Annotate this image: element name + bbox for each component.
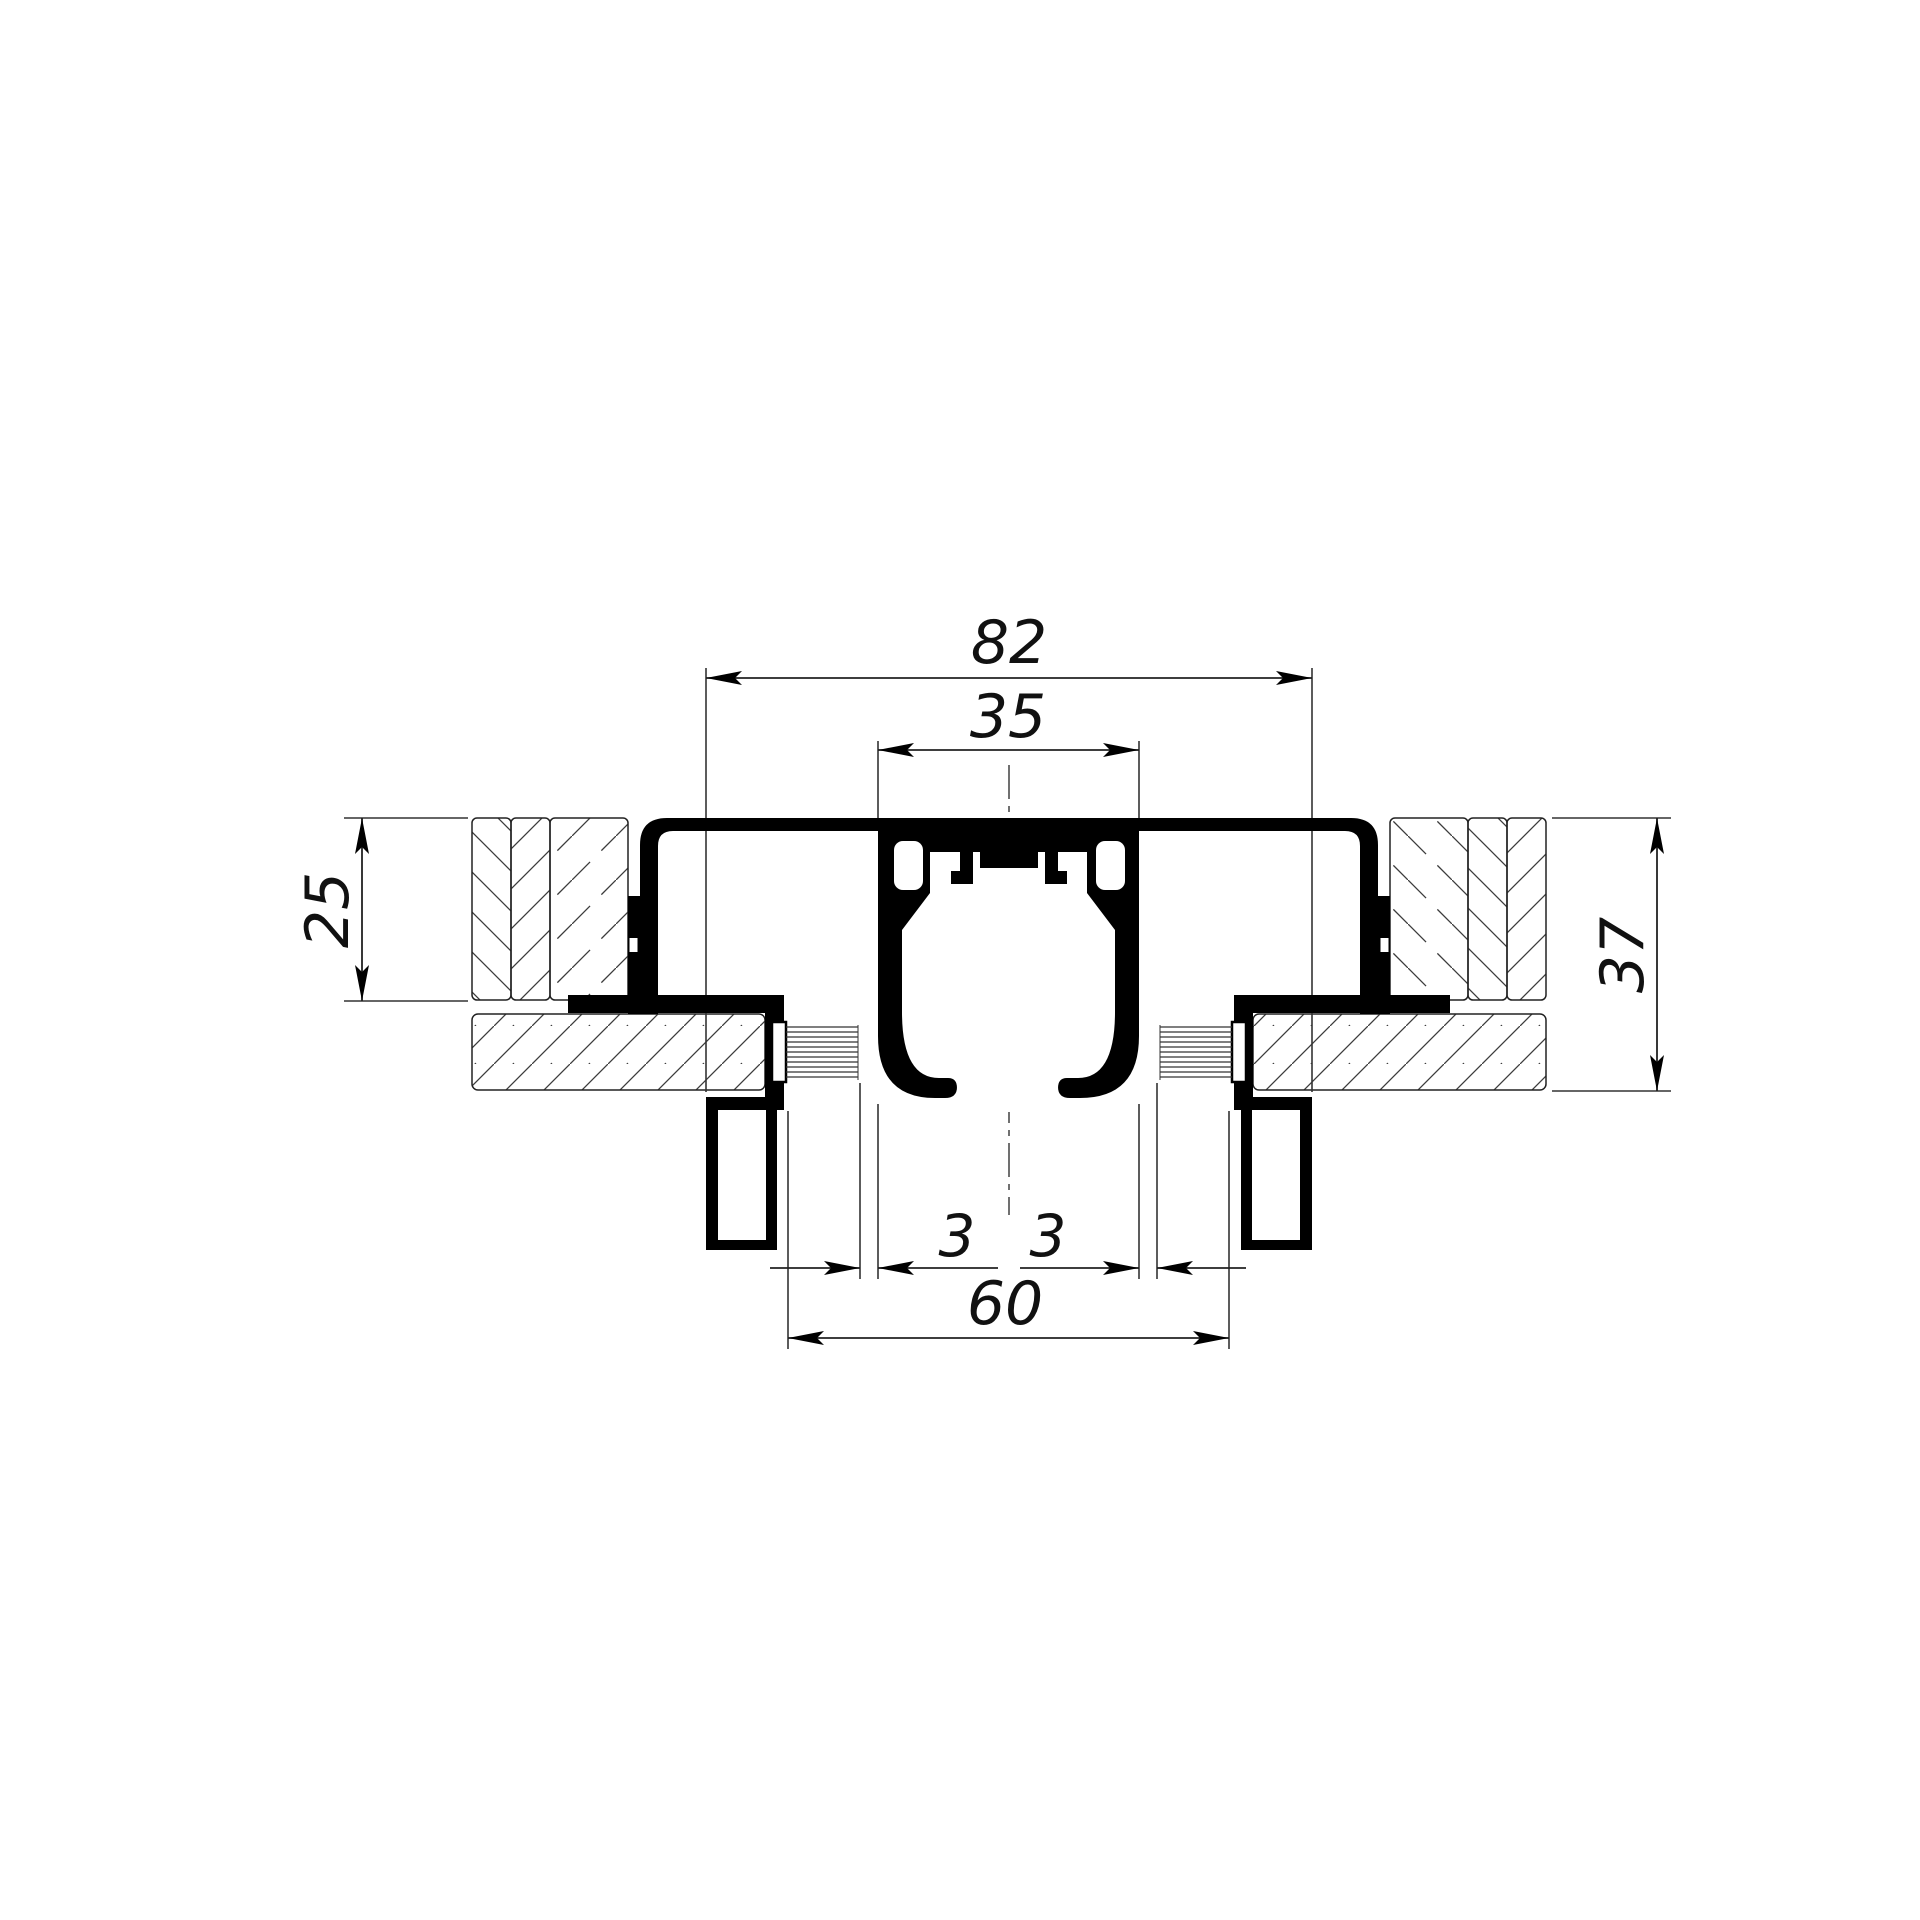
dimension-37: 37 <box>1588 818 1664 1091</box>
wall-upper-left-ply-outer-a <box>472 818 511 1000</box>
dim-3-left-label: 3 <box>939 1202 976 1270</box>
brush-holder-right <box>1232 1022 1246 1082</box>
architrave-lower-right <box>1253 1014 1546 1090</box>
brush-holder-left <box>772 1022 786 1082</box>
dim-3-right-label: 3 <box>1030 1202 1067 1270</box>
dim-25-label: 25 <box>293 872 363 948</box>
track-cavity <box>902 852 1115 1112</box>
architrave-lower-left <box>472 1014 765 1090</box>
dimension-3-3: 3 3 <box>770 1202 1246 1275</box>
brush-bristles-left <box>786 1025 858 1080</box>
fixing-clip-right-notch <box>1381 938 1389 952</box>
wall-upper-left-ply-outer-b <box>511 818 550 1000</box>
dim-82-label: 82 <box>971 608 1047 678</box>
dim-35-label: 35 <box>970 682 1046 752</box>
wall-upper-right-ply-outer-a <box>1468 818 1507 1000</box>
track-screw-channel-right <box>1096 841 1125 890</box>
drawing-canvas: 82 35 25 37 3 3 60 <box>0 0 1920 1920</box>
dim-60-label: 60 <box>967 1269 1043 1339</box>
wall-upper-right-ply-inner <box>1390 818 1468 1000</box>
dimension-35: 35 <box>878 682 1139 757</box>
dimension-25: 25 <box>293 818 369 1001</box>
dim-37-label: 37 <box>1588 917 1658 993</box>
jamb-angle-left-flange <box>568 995 784 1013</box>
dimension-82: 82 <box>706 608 1312 685</box>
wall-upper-right-ply-outer-b <box>1507 818 1546 1000</box>
wall-upper-left-ply-inner <box>550 818 628 1000</box>
track-centre-rib <box>980 846 1038 868</box>
track-screw-channel-left <box>894 841 923 890</box>
jamb-angle-right-flange <box>1234 995 1450 1013</box>
jamb-tube-left-cavity <box>718 1110 766 1240</box>
brush-bristles-right <box>1160 1025 1232 1080</box>
dimension-60: 60 <box>788 1269 1229 1345</box>
technical-drawing: 82 35 25 37 3 3 60 <box>0 0 1920 1920</box>
jamb-tube-right-cavity <box>1252 1110 1300 1240</box>
fixing-clip-left-notch <box>630 938 638 952</box>
